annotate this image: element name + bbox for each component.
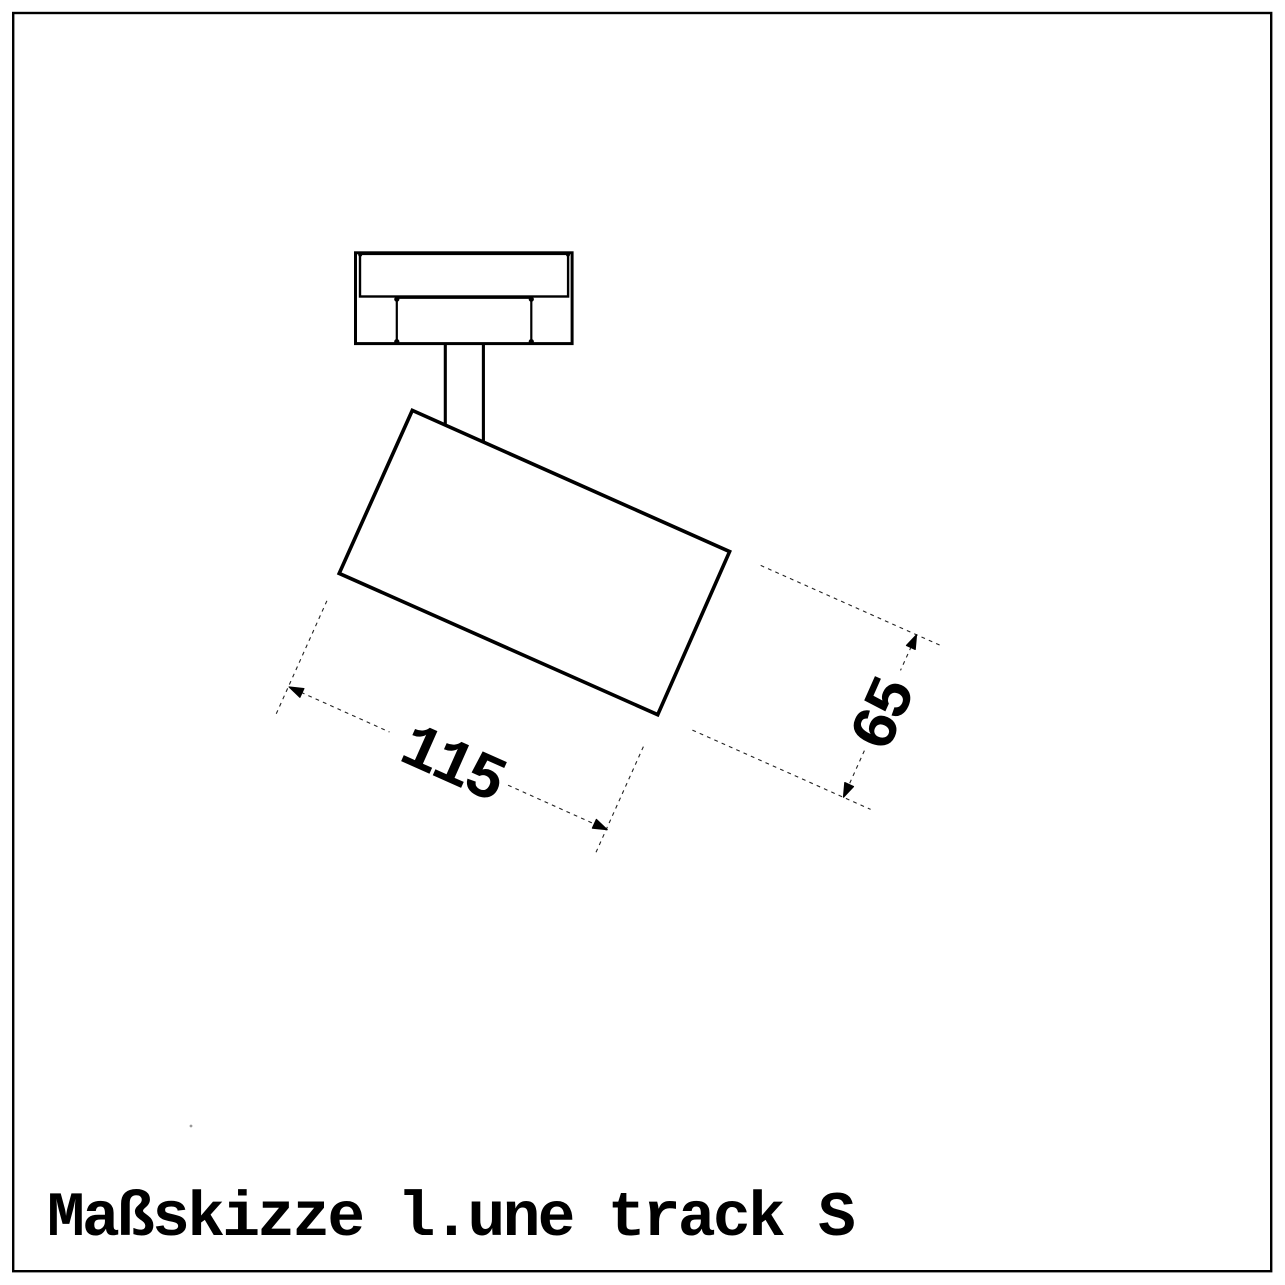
svg-text:Maßskizze l.une track S: Maßskizze l.une track S (47, 1183, 854, 1254)
